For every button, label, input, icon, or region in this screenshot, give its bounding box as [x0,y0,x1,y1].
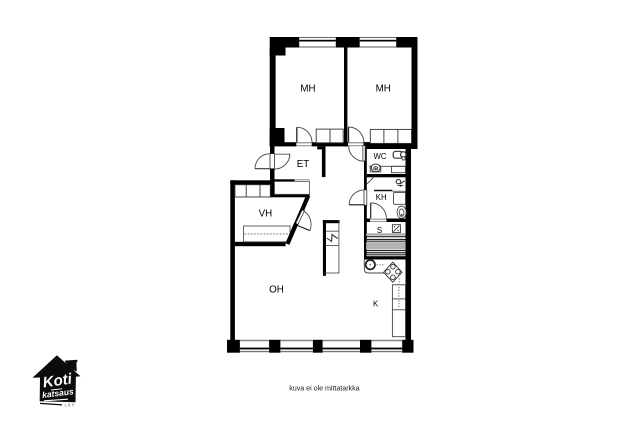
svg-text:WC: WC [374,152,387,161]
svg-text:MH: MH [300,84,315,95]
svg-text:S: S [377,226,382,235]
svg-text:kuva ei ole mittatarkka: kuva ei ole mittatarkka [289,384,359,393]
svg-text:MH: MH [376,84,391,95]
svg-text:K: K [373,300,379,309]
svg-text:OH: OH [269,285,284,296]
svg-text:VH: VH [259,208,273,219]
svg-text:LKY: LKY [65,403,76,408]
svg-text:ET: ET [297,159,310,170]
svg-text:KH: KH [376,193,387,202]
